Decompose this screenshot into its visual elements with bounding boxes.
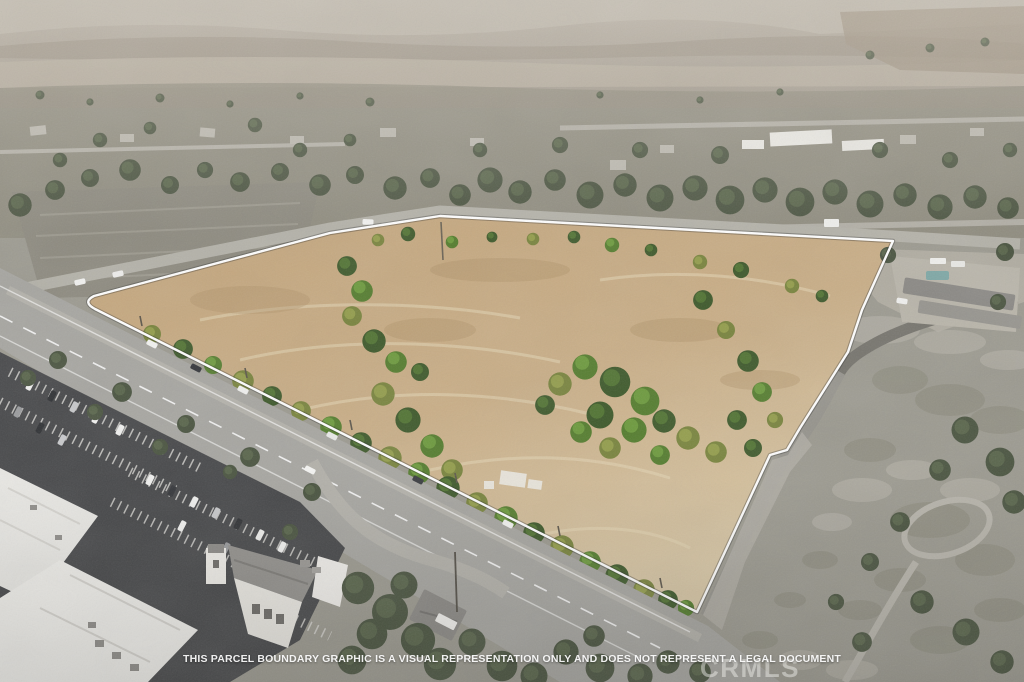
aerial-photo-canvas (0, 0, 1024, 682)
aerial-photo: THIS PARCEL BOUNDARY GRAPHIC IS A VISUAL… (0, 0, 1024, 682)
film-grain (0, 0, 1024, 682)
